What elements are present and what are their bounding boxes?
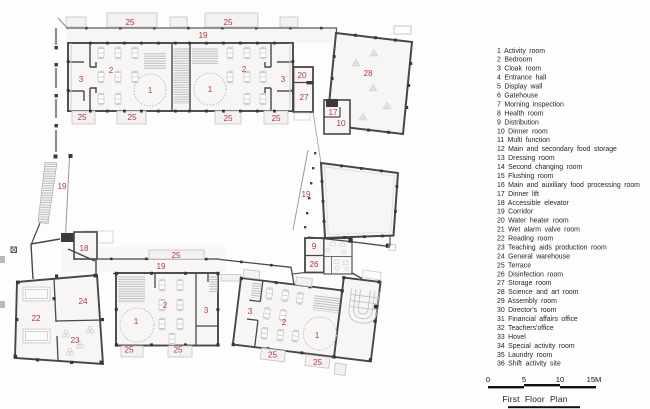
svg-text:20 Water heater room: 20 Water heater room — [497, 218, 569, 225]
svg-text:29 Assembly room: 29 Assembly room — [497, 298, 557, 305]
svg-text:First Floor Plan: First Floor Plan — [502, 394, 567, 404]
svg-text:3 Cloak room: 3 Cloak room — [497, 66, 541, 73]
svg-text:25: 25 — [268, 351, 278, 360]
svg-text:30 Director's room: 30 Director's room — [497, 307, 557, 314]
svg-text:18 Accessible elevator: 18 Accessible elevator — [497, 200, 569, 207]
svg-text:25: 25 — [173, 346, 183, 355]
svg-text:17: 17 — [328, 108, 338, 117]
svg-text:5: 5 — [522, 375, 526, 384]
svg-text:28: 28 — [363, 69, 373, 78]
svg-text:25: 25 — [125, 18, 135, 27]
svg-text:27 Storage room: 27 Storage room — [497, 280, 552, 287]
svg-text:1: 1 — [134, 317, 139, 326]
svg-text:10 Dinner room: 10 Dinner room — [497, 128, 548, 135]
svg-text:1: 1 — [208, 85, 213, 94]
svg-text:21 Wet alarm valve room: 21 Wet alarm valve room — [497, 227, 580, 234]
svg-text:16 Main and auxiliary food pro: 16 Main and auxiliary food processing ro… — [497, 182, 640, 189]
svg-text:20: 20 — [297, 71, 307, 80]
svg-text:19: 19 — [301, 190, 311, 199]
svg-text:22 Reading room: 22 Reading room — [497, 236, 553, 243]
svg-text:0: 0 — [486, 375, 490, 384]
svg-text:25: 25 — [223, 114, 233, 123]
svg-text:2: 2 — [242, 65, 247, 74]
svg-text:9: 9 — [312, 242, 317, 251]
svg-text:36 Shift activity site: 36 Shift activity site — [497, 361, 561, 368]
svg-text:1 Activity room: 1 Activity room — [497, 48, 545, 55]
svg-text:10: 10 — [556, 375, 564, 384]
svg-text:27: 27 — [299, 93, 309, 102]
svg-text:13 Dressing room: 13 Dressing room — [497, 155, 555, 162]
svg-text:26 Disinfection room: 26 Disinfection room — [497, 271, 563, 278]
svg-text:33 Hovel: 33 Hovel — [497, 334, 526, 341]
svg-text:8 Health room: 8 Health room — [497, 110, 544, 117]
svg-text:1: 1 — [148, 86, 153, 95]
svg-text:28 Science and art room: 28 Science and art room — [497, 289, 579, 296]
svg-text:5 Display wall: 5 Display wall — [497, 84, 543, 91]
svg-text:6 Gatehouse: 6 Gatehouse — [497, 93, 538, 100]
svg-text:1: 1 — [315, 331, 320, 340]
svg-text:3: 3 — [281, 75, 286, 84]
svg-text:2: 2 — [109, 66, 114, 75]
svg-text:34 Special activity room: 34 Special activity room — [497, 343, 575, 350]
svg-text:2: 2 — [282, 318, 287, 327]
svg-text:26: 26 — [309, 260, 319, 269]
svg-text:14 Second changing room: 14 Second changing room — [497, 164, 583, 171]
svg-text:2 Bedroom: 2 Bedroom — [497, 57, 533, 64]
svg-text:3: 3 — [79, 75, 84, 84]
svg-text:10: 10 — [336, 119, 346, 128]
svg-text:19 Corridor: 19 Corridor — [497, 209, 534, 216]
svg-text:35 Laundry room: 35 Laundry room — [497, 352, 553, 359]
svg-text:19: 19 — [57, 182, 67, 191]
svg-text:25 Terrace: 25 Terrace — [497, 262, 531, 269]
svg-text:11 Multi function: 11 Multi function — [497, 137, 550, 144]
svg-text:23: 23 — [70, 336, 80, 345]
svg-text:25: 25 — [127, 113, 137, 122]
svg-text:31 Financial affairs office: 31 Financial affairs office — [497, 316, 578, 323]
svg-text:22: 22 — [31, 314, 41, 323]
svg-text:15 Flushing room: 15 Flushing room — [497, 173, 554, 180]
svg-text:23 Teaching aids production ro: 23 Teaching aids production room — [497, 245, 607, 252]
svg-text:3: 3 — [248, 307, 253, 316]
svg-text:25: 25 — [223, 18, 233, 27]
svg-text:24 General warehouse: 24 General warehouse — [497, 253, 570, 260]
svg-text:25: 25 — [313, 358, 323, 367]
svg-text:4 Entrance hall: 4 Entrance hall — [497, 75, 547, 82]
svg-text:25: 25 — [271, 114, 281, 123]
svg-text:15M: 15M — [587, 375, 602, 384]
svg-text:7 Morning inspection: 7 Morning inspection — [497, 101, 564, 108]
svg-text:19: 19 — [198, 31, 208, 40]
svg-text:19: 19 — [156, 262, 166, 271]
svg-text:12 Main and secondary food sto: 12 Main and secondary food storage — [497, 146, 617, 153]
svg-text:9 Distribution: 9 Distribution — [497, 119, 539, 126]
svg-text:25: 25 — [171, 251, 181, 260]
svg-text:32 Teachers'office: 32 Teachers'office — [497, 325, 554, 332]
svg-text:2: 2 — [163, 301, 168, 310]
svg-text:25: 25 — [124, 346, 134, 355]
svg-text:18: 18 — [79, 244, 89, 253]
svg-text:17 Dinner lift: 17 Dinner lift — [497, 191, 539, 198]
svg-text:3: 3 — [204, 306, 209, 315]
svg-text:24: 24 — [78, 297, 88, 306]
svg-text:25: 25 — [77, 113, 87, 122]
